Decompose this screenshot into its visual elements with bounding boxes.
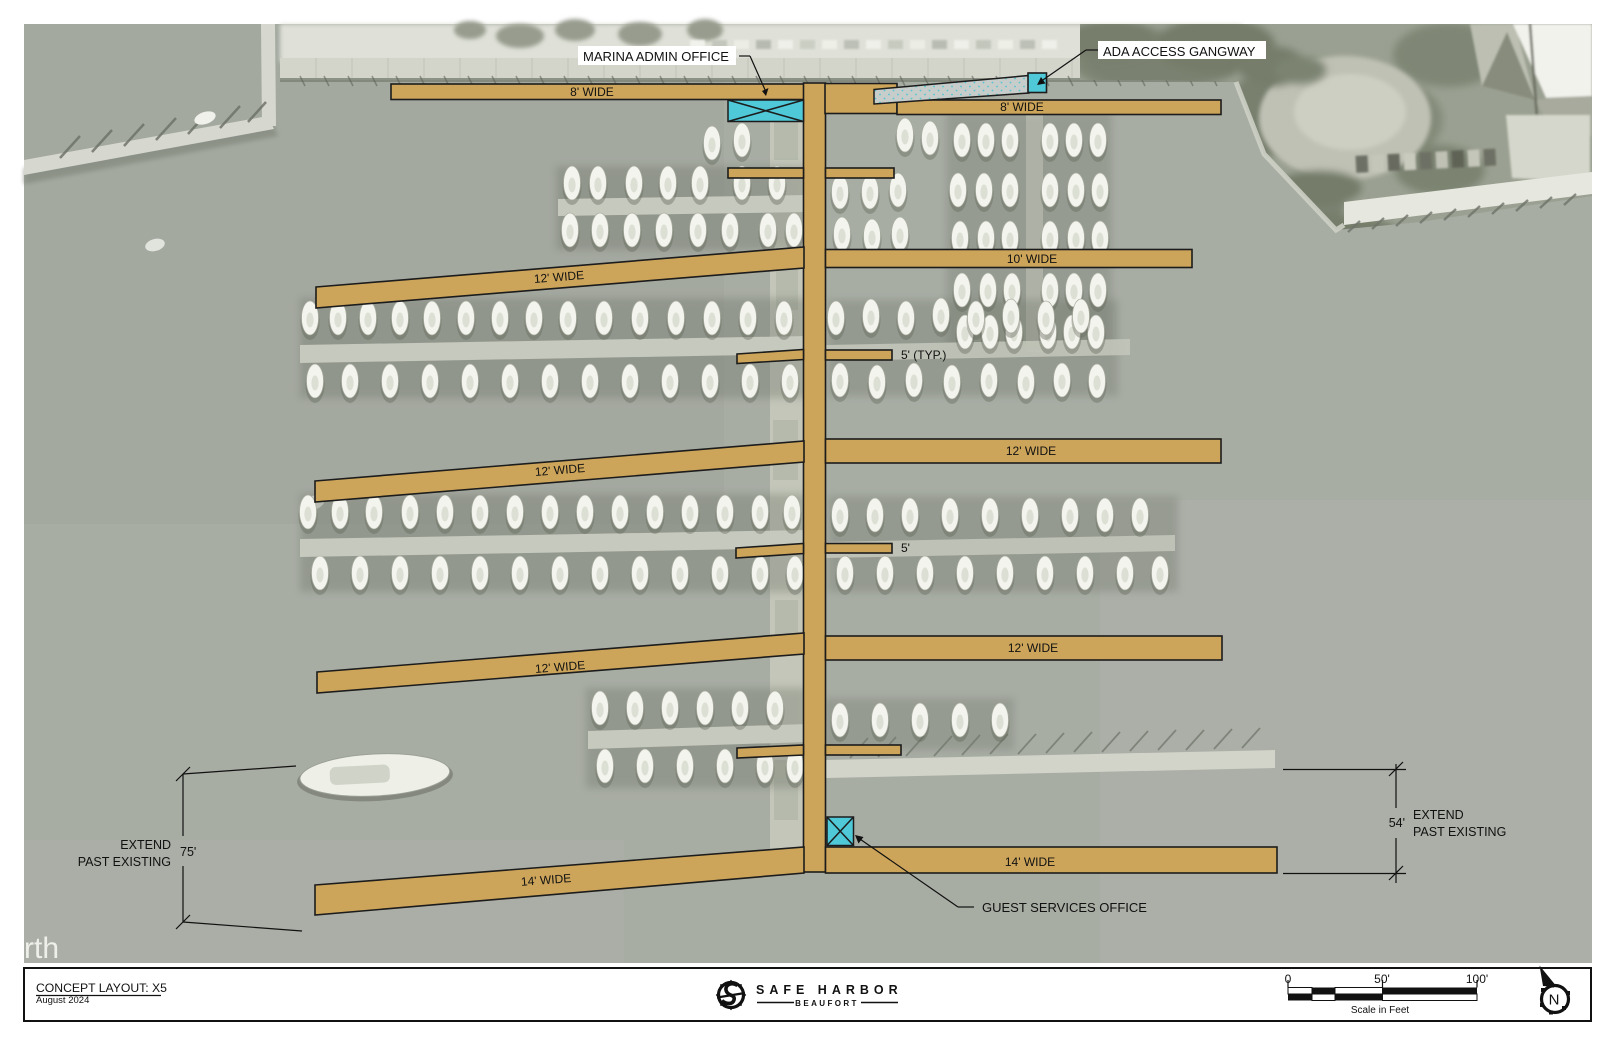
- svg-text:54': 54': [1389, 816, 1405, 830]
- svg-text:August 2024: August 2024: [36, 995, 89, 1006]
- svg-text:12' WIDE: 12' WIDE: [1006, 444, 1056, 458]
- svg-text:MARINA ADMIN OFFICE: MARINA ADMIN OFFICE: [583, 49, 729, 64]
- svg-text:ADA ACCESS GANGWAY: ADA ACCESS GANGWAY: [1103, 44, 1256, 59]
- svg-text:PAST EXISTING: PAST EXISTING: [78, 855, 171, 869]
- svg-text:SAFE HARBOR: SAFE HARBOR: [756, 983, 903, 997]
- svg-text:N: N: [1549, 992, 1560, 1009]
- svg-text:50': 50': [1374, 972, 1390, 986]
- svg-text:GUEST SERVICES OFFICE: GUEST SERVICES OFFICE: [982, 900, 1147, 915]
- svg-text:8' WIDE: 8' WIDE: [1000, 100, 1044, 114]
- svg-text:PAST EXISTING: PAST EXISTING: [1413, 825, 1506, 839]
- svg-text:5' (TYP.): 5' (TYP.): [901, 348, 946, 362]
- svg-text:EXTEND: EXTEND: [1413, 808, 1464, 822]
- svg-text:8' WIDE: 8' WIDE: [570, 85, 614, 99]
- svg-text:EXTEND: EXTEND: [120, 838, 171, 852]
- svg-text:12' WIDE: 12' WIDE: [1008, 641, 1058, 655]
- svg-text:BEAUFORT: BEAUFORT: [795, 999, 859, 1008]
- svg-text:5': 5': [901, 541, 910, 555]
- svg-text:100': 100': [1466, 972, 1488, 986]
- svg-text:rth: rth: [24, 932, 59, 965]
- svg-text:Scale in Feet: Scale in Feet: [1351, 1005, 1410, 1016]
- svg-text:10' WIDE: 10' WIDE: [1007, 252, 1057, 266]
- svg-text:CONCEPT LAYOUT: X5: CONCEPT LAYOUT: X5: [36, 981, 167, 995]
- svg-text:14' WIDE: 14' WIDE: [1005, 855, 1055, 869]
- svg-text:75': 75': [180, 845, 196, 859]
- svg-text:0: 0: [1285, 972, 1292, 986]
